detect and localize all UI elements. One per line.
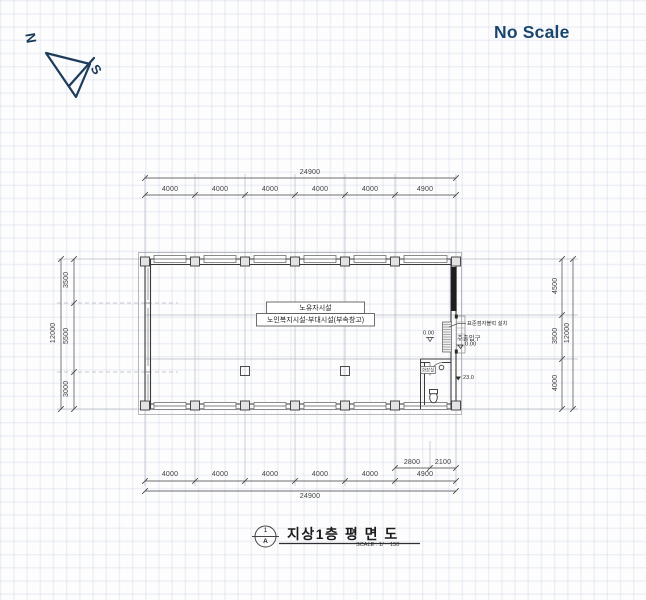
braille-block-note: 표준점자블럭 설치 — [467, 321, 507, 326]
no-scale-note: No Scale — [494, 22, 594, 43]
entrance-level-left: 0.00 — [423, 330, 434, 336]
dim-bottom-seg-2: 4000 — [200, 471, 240, 479]
scale-value: 150 — [390, 541, 399, 547]
dim-right-seg-3: 4000 — [552, 363, 560, 403]
left-wall-windows — [145, 268, 151, 400]
dim-bottom-seg-3: 4000 — [250, 471, 290, 479]
dim-right-overall: 12000 — [564, 313, 572, 353]
dim-top-seg-1: 4000 — [150, 186, 190, 194]
porch-level: 0.00 — [465, 341, 476, 347]
right-wall-solid — [451, 267, 456, 311]
drawing-scale: SCALE : 1/150 — [356, 541, 406, 547]
dim-bottom-sub-2: 2100 — [423, 459, 463, 467]
dim-left-seg-3: 3000 — [63, 369, 71, 409]
dim-bottom-seg-4: 4000 — [300, 471, 340, 479]
room-label-line2: 노인복지시설-부대시설(부속창고) — [256, 317, 375, 324]
roof-outline — [139, 253, 462, 415]
dim-top-seg-3: 4000 — [250, 186, 290, 194]
dim-right-seg-2: 3500 — [552, 316, 560, 356]
floor-plan-linework — [0, 0, 646, 600]
north-arrow-icon — [46, 53, 94, 97]
dimension-lines — [61, 178, 573, 491]
title-ref-bottom: A — [261, 539, 271, 546]
dim-left-seg-1: 3500 — [63, 260, 71, 300]
toilet-label: 화장실 — [422, 368, 434, 372]
dim-top-seg-5: 4000 — [350, 186, 390, 194]
scale-label: SCALE : 1/ — [356, 541, 384, 547]
drawing-sheet: No Scale N S 24900 4000 4000 4000 4000 4… — [0, 0, 646, 600]
dim-right-seg-1: 4500 — [552, 266, 560, 306]
side-level: 23.0 — [463, 375, 474, 381]
dim-bottom-overall: 24900 — [280, 493, 340, 501]
dim-top-seg-6: 4900 — [405, 186, 445, 194]
dim-top-seg-2: 4000 — [200, 186, 240, 194]
dim-top-overall: 24900 — [280, 169, 340, 177]
building-walls — [145, 259, 456, 409]
dim-bottom-seg-1: 4000 — [150, 471, 190, 479]
dim-bottom-seg-6: 4900 — [405, 471, 445, 479]
grid-lines — [57, 174, 578, 486]
columns — [141, 257, 461, 410]
dimension-ticks — [58, 175, 576, 494]
dim-top-seg-4: 4000 — [300, 186, 340, 194]
title-ref-top: 1 — [261, 528, 271, 535]
dim-left-overall: 12000 — [50, 313, 58, 353]
room-label-line1: 노유자시설 — [266, 305, 365, 312]
dim-left-seg-2: 5500 — [63, 316, 71, 356]
dim-bottom-seg-5: 4000 — [350, 471, 390, 479]
